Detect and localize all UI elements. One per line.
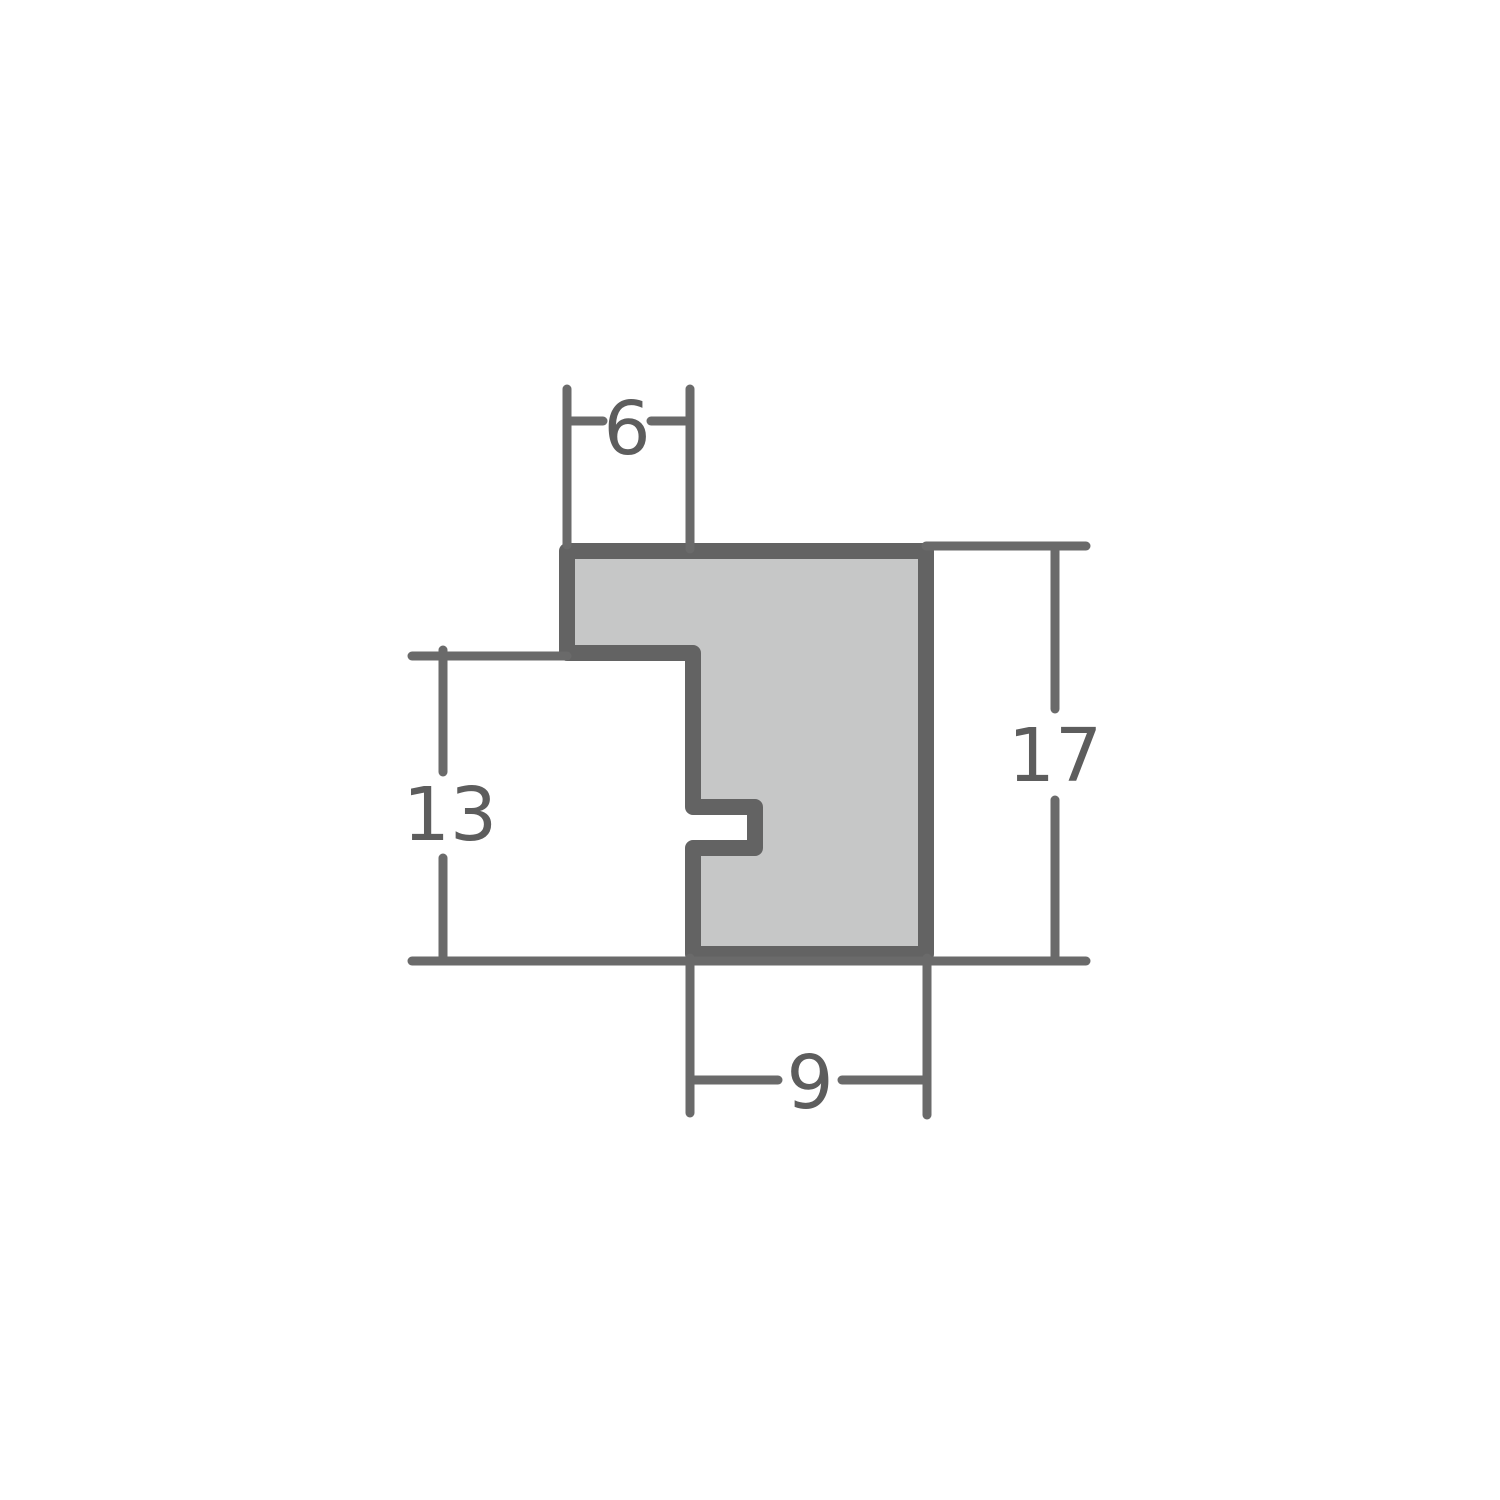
dimension-left-height: 13	[403, 650, 567, 961]
dimension-top-width: 6	[567, 386, 690, 549]
dimension-label-right: 17	[1008, 713, 1102, 799]
dimension-label-left: 13	[403, 772, 497, 858]
diagram-canvas: 6 13 17 9	[0, 0, 1500, 1500]
profile-cross-section	[567, 551, 926, 954]
dimension-label-top: 6	[603, 386, 650, 472]
frame-profile-diagram: 6 13 17 9	[0, 0, 1500, 1500]
dimension-right-height: 17	[926, 546, 1102, 961]
dimension-bottom-width: 9	[690, 958, 927, 1126]
dimension-label-bottom: 9	[786, 1040, 833, 1126]
